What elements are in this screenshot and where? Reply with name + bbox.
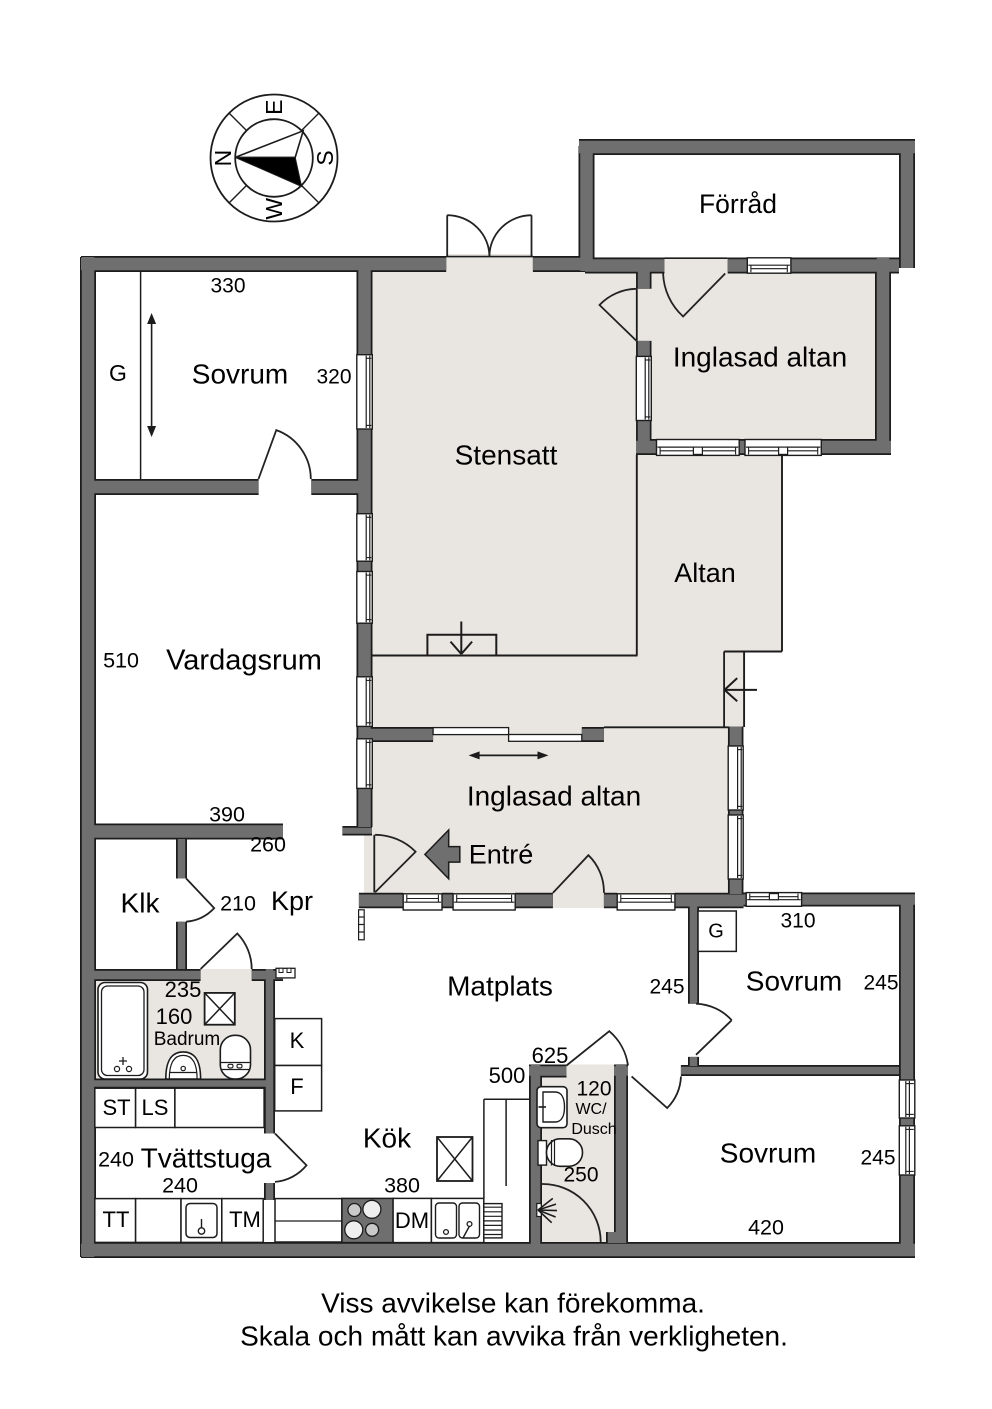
svg-text:245: 245: [863, 972, 898, 995]
svg-text:LS: LS: [142, 1095, 169, 1120]
svg-text:Dusch: Dusch: [571, 1121, 616, 1138]
svg-text:Förråd: Förråd: [699, 189, 777, 219]
svg-text:K: K: [290, 1028, 305, 1053]
svg-text:235: 235: [165, 977, 202, 1002]
svg-text:245: 245: [860, 1147, 895, 1170]
svg-text:G: G: [708, 920, 724, 942]
svg-text:240: 240: [98, 1148, 134, 1172]
svg-text:160: 160: [156, 1004, 193, 1029]
svg-text:ST: ST: [102, 1095, 130, 1120]
svg-text:Sovrum: Sovrum: [746, 965, 842, 996]
svg-text:WC/: WC/: [575, 1101, 607, 1118]
svg-text:Altan: Altan: [674, 558, 736, 588]
svg-text:Viss avvikelse kan förekomma.: Viss avvikelse kan förekomma.: [321, 1287, 705, 1318]
svg-text:G: G: [109, 360, 127, 386]
svg-text:210: 210: [220, 892, 256, 916]
svg-text:TM: TM: [229, 1207, 261, 1232]
svg-text:120: 120: [576, 1078, 611, 1101]
svg-text:S: S: [312, 150, 338, 165]
svg-text:TT: TT: [103, 1207, 130, 1232]
svg-text:240: 240: [162, 1174, 198, 1198]
svg-text:Stensatt: Stensatt: [455, 439, 558, 470]
svg-text:310: 310: [780, 910, 815, 933]
svg-text:390: 390: [209, 803, 245, 827]
svg-text:330: 330: [210, 275, 245, 298]
svg-text:260: 260: [250, 833, 286, 857]
svg-text:Tvättstuga: Tvättstuga: [141, 1142, 272, 1173]
svg-text:Skala och mått kan avvika från: Skala och mått kan avvika från verklighe…: [240, 1320, 788, 1351]
svg-text:625: 625: [532, 1043, 569, 1068]
svg-text:Entré: Entré: [469, 840, 534, 870]
svg-text:W: W: [261, 198, 287, 220]
svg-text:Kpr: Kpr: [271, 886, 313, 916]
svg-text:F: F: [290, 1074, 303, 1099]
svg-text:DM: DM: [395, 1208, 429, 1233]
svg-text:Klk: Klk: [121, 887, 161, 918]
svg-text:500: 500: [489, 1063, 526, 1088]
svg-text:N: N: [210, 150, 236, 167]
svg-text:Kök: Kök: [363, 1122, 412, 1153]
svg-text:245: 245: [649, 976, 684, 999]
svg-text:Vardagsrum: Vardagsrum: [166, 645, 322, 677]
svg-text:Sovrum: Sovrum: [720, 1137, 816, 1168]
svg-text:Sovrum: Sovrum: [192, 358, 288, 389]
svg-text:Badrum: Badrum: [154, 1029, 221, 1050]
svg-text:510: 510: [103, 649, 139, 673]
svg-text:250: 250: [563, 1164, 598, 1187]
svg-text:E: E: [261, 100, 287, 115]
svg-text:Inglasad altan: Inglasad altan: [467, 780, 641, 811]
svg-text:380: 380: [384, 1174, 420, 1198]
svg-text:Matplats: Matplats: [447, 970, 553, 1001]
svg-text:420: 420: [748, 1216, 784, 1240]
svg-text:Inglasad altan: Inglasad altan: [673, 341, 847, 372]
svg-text:320: 320: [316, 366, 351, 389]
